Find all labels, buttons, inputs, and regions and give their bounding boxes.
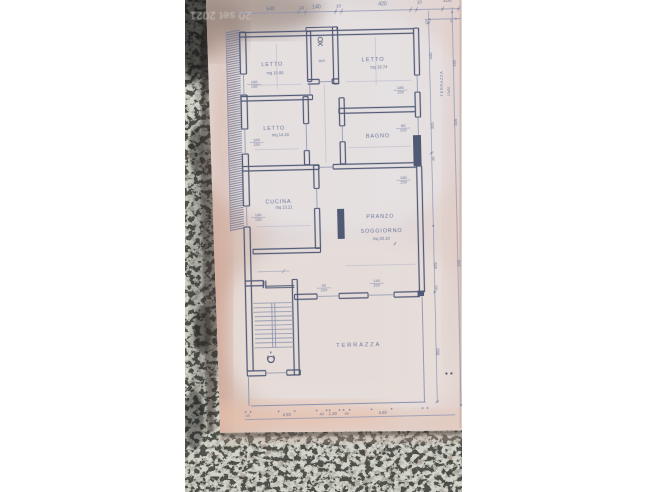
svg-text:10: 10 — [336, 3, 342, 8]
svg-text:860: 860 — [435, 347, 440, 355]
svg-text:20 set 2021: 20 set 2021 — [190, 9, 252, 21]
svg-text:305: 305 — [430, 122, 435, 130]
svg-text:mq 19.74: mq 19.74 — [370, 64, 388, 69]
svg-text:LETTO: LETTO — [362, 57, 385, 64]
svg-text:SOGGIORNO: SOGGIORNO — [361, 228, 403, 235]
svg-text:BAGNO: BAGNO — [366, 133, 390, 140]
svg-text:mq 15.66: mq 15.66 — [266, 70, 284, 75]
svg-text:PRANZO: PRANZO — [366, 213, 394, 220]
svg-text:440: 440 — [452, 59, 457, 67]
svg-text:LETTO: LETTO — [261, 62, 283, 68]
svg-text:1.40: 1.40 — [329, 411, 338, 416]
svg-text:420: 420 — [378, 1, 387, 7]
svg-text:TERRAZZA: TERRAZZA — [336, 342, 381, 349]
svg-text:540: 540 — [266, 6, 275, 12]
svg-text:mq 14.24: mq 14.24 — [272, 132, 290, 137]
svg-text:LETTO: LETTO — [263, 125, 285, 131]
svg-text:RIP.: RIP. — [319, 58, 326, 63]
svg-text:20: 20 — [450, 19, 454, 23]
svg-text:mq 13.21: mq 13.21 — [275, 204, 293, 209]
svg-text:345: 345 — [456, 259, 461, 267]
svg-text:10x30: 10x30 — [447, 87, 451, 96]
svg-text:140: 140 — [312, 4, 321, 10]
svg-text:mq 40.10: mq 40.10 — [373, 236, 391, 241]
svg-text:440: 440 — [428, 52, 433, 60]
svg-text:TERRAZZA: TERRAZZA — [438, 71, 444, 97]
svg-text:345: 345 — [433, 262, 438, 270]
svg-text:10: 10 — [299, 5, 305, 10]
svg-text:305: 305 — [453, 118, 458, 126]
svg-text:4.50: 4.50 — [283, 412, 292, 417]
svg-text:10: 10 — [417, 0, 423, 5]
svg-text:4.50: 4.50 — [379, 410, 388, 415]
svg-text:200: 200 — [443, 0, 452, 4]
